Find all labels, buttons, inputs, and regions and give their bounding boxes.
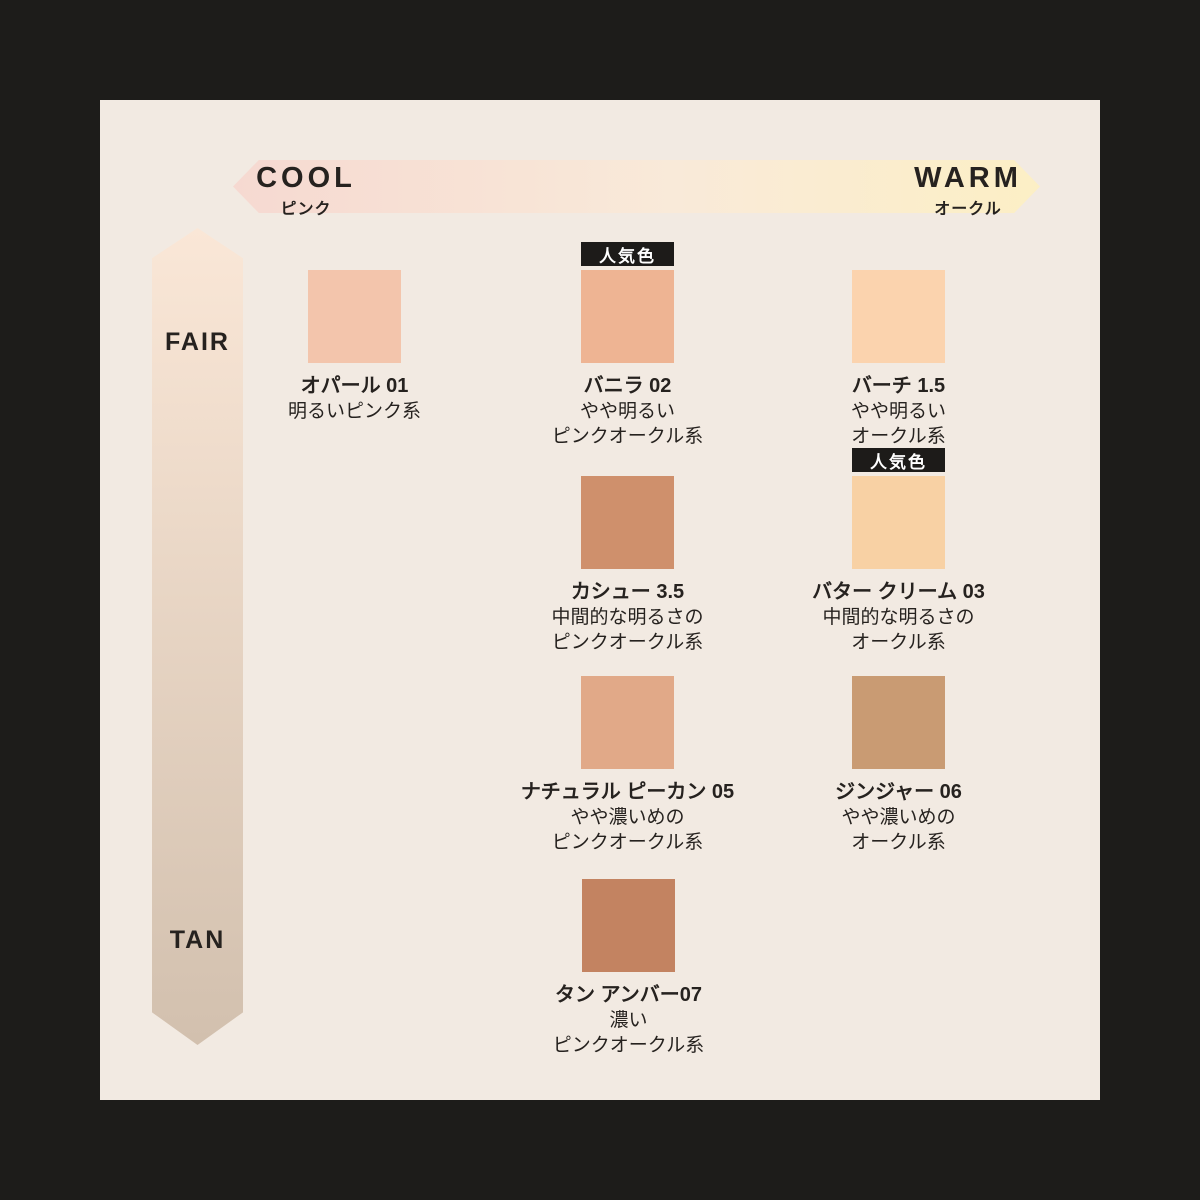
- shade-name: タン アンバー07: [479, 982, 779, 1008]
- shade-label: ナチュラル ピーカン 05 やや濃いめの ピンクオークル系: [478, 779, 778, 855]
- popular-badge: 人気色: [581, 242, 674, 266]
- cool-sublabel: ピンク: [236, 195, 376, 219]
- shade-desc-line: 中間的な明るさの: [749, 605, 1049, 630]
- popular-badge: 人気色: [852, 448, 945, 472]
- shade-cell: バーチ 1.5 やや明るい オークル系: [852, 270, 945, 363]
- shade-desc-line: 中間的な明るさの: [478, 605, 778, 630]
- shade-swatch: [582, 879, 675, 972]
- shade-name: ナチュラル ピーカン 05: [478, 779, 778, 805]
- shade-cell: ジンジャー 06 やや濃いめの オークル系: [852, 676, 945, 769]
- shade-desc-line: 濃い: [479, 1008, 779, 1033]
- shade-desc-line: ピンクオークル系: [478, 830, 778, 855]
- shade-name: ジンジャー 06: [749, 779, 1049, 805]
- shade-swatch: [852, 476, 945, 569]
- shade-name: カシュー 3.5: [478, 579, 778, 605]
- shade-swatch: [581, 270, 674, 363]
- warm-sublabel: オークル: [898, 195, 1038, 219]
- shade-label: バター クリーム 03 中間的な明るさの オークル系: [749, 579, 1049, 655]
- shade-name: オパール 01: [205, 373, 505, 399]
- shade-name: バニラ 02: [478, 373, 778, 399]
- shade-label: バーチ 1.5 やや明るい オークル系: [749, 373, 1049, 449]
- shade-name: バーチ 1.5: [749, 373, 1049, 399]
- warm-axis-label: WARM オークル: [898, 163, 1038, 219]
- shade-cell: オパール 01 明るいピンク系: [308, 270, 401, 363]
- tan-label: TAN: [152, 926, 243, 955]
- shade-desc-line: ピンクオークル系: [479, 1033, 779, 1058]
- shade-desc-line: オークル系: [749, 424, 1049, 449]
- shade-label: カシュー 3.5 中間的な明るさの ピンクオークル系: [478, 579, 778, 655]
- shade-desc-line: やや明るい: [749, 399, 1049, 424]
- shade-name: バター クリーム 03: [749, 579, 1049, 605]
- shade-cell: カシュー 3.5 中間的な明るさの ピンクオークル系: [581, 476, 674, 569]
- shade-desc-line: オークル系: [749, 630, 1049, 655]
- shade-desc-line: 明るいピンク系: [205, 399, 505, 424]
- shade-desc-line: ピンクオークル系: [478, 424, 778, 449]
- shade-swatch: [308, 270, 401, 363]
- shade-swatch: [581, 476, 674, 569]
- shade-label: バニラ 02 やや明るい ピンクオークル系: [478, 373, 778, 449]
- fair-label: FAIR: [152, 328, 243, 357]
- warm-label: WARM: [898, 163, 1038, 193]
- shade-label: オパール 01 明るいピンク系: [205, 373, 505, 424]
- shade-desc-line: やや明るい: [478, 399, 778, 424]
- shade-cell: 人気色 バニラ 02 やや明るい ピンクオークル系: [581, 270, 674, 363]
- shade-cell: ナチュラル ピーカン 05 やや濃いめの ピンクオークル系: [581, 676, 674, 769]
- shade-label: ジンジャー 06 やや濃いめの オークル系: [749, 779, 1049, 855]
- shade-label: タン アンバー07 濃い ピンクオークル系: [479, 982, 779, 1058]
- cool-axis-label: COOL ピンク: [236, 163, 376, 219]
- shade-swatch: [581, 676, 674, 769]
- shade-cell: 人気色 バター クリーム 03 中間的な明るさの オークル系: [852, 476, 945, 569]
- shade-chart: COOL ピンク WARM オークル FAIR TAN オパール 01 明るいピ…: [0, 0, 1200, 1200]
- shade-swatch: [852, 676, 945, 769]
- shade-desc-line: ピンクオークル系: [478, 630, 778, 655]
- cool-label: COOL: [236, 163, 376, 193]
- shade-desc-line: やや濃いめの: [749, 805, 1049, 830]
- shade-cell: タン アンバー07 濃い ピンクオークル系: [582, 879, 675, 972]
- shade-swatch: [852, 270, 945, 363]
- shade-desc-line: やや濃いめの: [478, 805, 778, 830]
- shade-desc-line: オークル系: [749, 830, 1049, 855]
